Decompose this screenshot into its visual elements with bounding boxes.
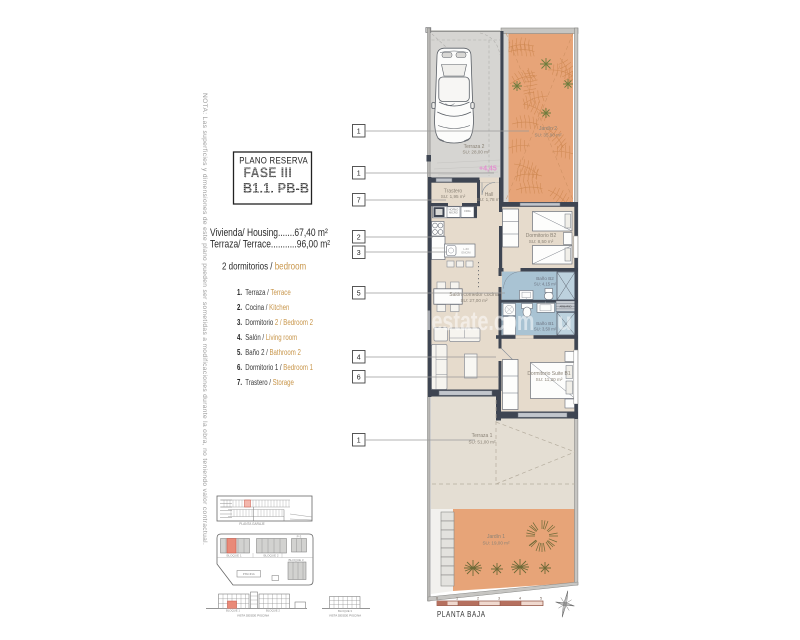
svg-text:Dormitorio 1 / Bedroom 1: Dormitorio 1 / Bedroom 1 [245,363,313,372]
svg-text:6.: 6. [237,363,242,372]
svg-text:SU: 3,50 m²: SU: 3,50 m² [534,327,557,332]
svg-text:2 dormitorios / bedroom: 2 dormitorios / bedroom [222,260,306,271]
svg-text:PISCINA: PISCINA [243,572,255,576]
svg-text:SU: 35,90 m²: SU: 35,90 m² [534,133,562,138]
svg-text:BLOQUE 3: BLOQUE 3 [338,609,352,613]
svg-text:SU: 19,00 m²: SU: 19,00 m² [482,541,510,546]
svg-text:P-3: P-3 [297,535,302,539]
svg-text:SU: 8,50 m²: SU: 8,50 m² [529,239,554,244]
svg-text:4: 4 [357,355,361,362]
svg-text:SU: 27,00 m²: SU: 27,00 m² [460,298,488,303]
svg-text:Baño B1: Baño B1 [536,321,554,326]
svg-text:1: 1 [357,171,361,178]
svg-text:3: 3 [357,250,361,257]
svg-text:SU: 11,20 m²: SU: 11,20 m² [536,377,563,382]
svg-text:ENCIM: ENCIM [461,251,471,255]
svg-text:BLOQUE 1: BLOQUE 1 [226,554,241,558]
svg-text:1: 1 [357,438,361,445]
svg-text:VISTA DESDE PISCINA: VISTA DESDE PISCINA [329,614,361,618]
svg-text:BLOQUE 2: BLOQUE 2 [263,554,278,558]
svg-text:Baño B2: Baño B2 [536,276,554,281]
svg-text:5.: 5. [237,348,242,357]
svg-text:SU: 28,00 m²: SU: 28,00 m² [462,150,490,155]
svg-text:Dormitorio 2 / Bedroom 2: Dormitorio 2 / Bedroom 2 [245,318,313,327]
svg-text:Jardín 2: Jardín 2 [539,126,557,132]
svg-text:6: 6 [357,375,361,382]
svg-text:3.: 3. [237,318,242,327]
svg-text:PLANTA BAJA: PLANTA BAJA [437,609,486,619]
svg-text:FASE III: FASE III [244,165,293,181]
svg-text:PLANTA GARAJE: PLANTA GARAJE [239,522,265,526]
svg-text:2: 2 [357,235,361,242]
svg-text:7.: 7. [237,378,242,387]
svg-text:FRIG: FRIG [464,209,470,213]
svg-text:Salón / Living room: Salón / Living room [245,333,297,342]
svg-text:4: 4 [519,597,521,601]
svg-text:lestate.com: lestate.com [426,307,534,337]
svg-text:B1.1. PB-B: B1.1. PB-B [243,180,309,196]
svg-text:BLOQUE 3: BLOQUE 3 [288,558,303,562]
svg-text:Trastero / Storage: Trastero / Storage [245,378,294,387]
svg-text:Cocina / Kitchen: Cocina / Kitchen [245,303,289,312]
svg-text:2: 2 [477,597,479,601]
svg-text:u: u [557,308,572,336]
svg-text:SU: 1,78 m²: SU: 1,78 m² [477,197,502,202]
svg-text:SU: 1,95 m²: SU: 1,95 m² [441,194,466,199]
svg-text:NOTA: Las superficies y dimens: NOTA: Las superficies y dimensiones de e… [201,93,208,545]
svg-text:2.: 2. [237,303,242,312]
svg-text:4.: 4. [237,333,242,342]
svg-text:Jardín 1: Jardín 1 [487,534,505,540]
svg-text:Baño 2 / Bathroom 2: Baño 2 / Bathroom 2 [245,348,301,357]
svg-text:Vivienda/ Housing.......67,40: Vivienda/ Housing.......67,40 m² [210,227,328,239]
svg-text:1: 1 [357,129,361,136]
svg-text:Terraza 1: Terraza 1 [472,433,493,439]
svg-text:7: 7 [357,198,361,205]
svg-text:Terraza/ Terrace...........96,: Terraza/ Terrace...........96,00 m² [210,239,331,251]
svg-text:1.: 1. [237,288,242,297]
svg-text:5: 5 [357,291,361,298]
svg-text:BLOQUE 2: BLOQUE 2 [266,609,280,613]
svg-text:Terraza / Terrace: Terraza / Terrace [245,288,290,297]
svg-text:SU: 4,15 m²: SU: 4,15 m² [534,282,557,287]
svg-text:BLOQUE 1: BLOQUE 1 [226,609,240,613]
svg-text:1: 1 [456,597,458,601]
svg-text:0: 0 [436,597,438,601]
svg-text:+4,45: +4,45 [479,166,497,173]
svg-text:MICRO: MICRO [449,211,458,215]
svg-text:3: 3 [498,597,500,601]
svg-text:5: 5 [540,597,542,601]
svg-text:VISTA DESDE PISCINA: VISTA DESDE PISCINA [237,614,269,618]
